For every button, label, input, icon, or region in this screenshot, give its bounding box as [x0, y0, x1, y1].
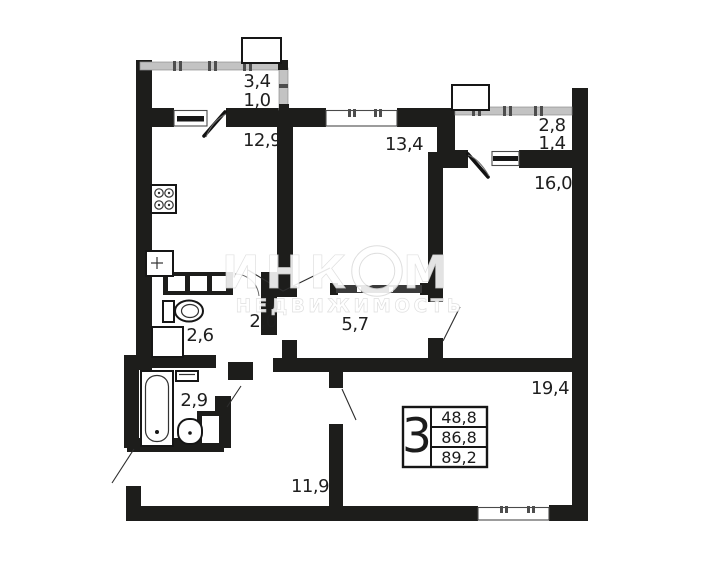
room-right-area: 16,0 — [534, 173, 572, 194]
bath-shelf-icon — [176, 371, 198, 381]
toilet-icon — [163, 301, 203, 323]
kitchen-sink-icon — [146, 251, 173, 276]
railing-left-side — [279, 68, 288, 110]
watermark-brand-right: М — [403, 246, 454, 299]
floor-plan: 3,4 1,0 12,9 13,4 2,8 1,4 16,0 2,6 2,0 5… — [0, 0, 701, 561]
balcony-left-area-reduced: 1,0 — [243, 90, 270, 111]
summary-room-count: 3 — [402, 409, 432, 464]
living-room-door-leader — [342, 389, 356, 420]
watermark-brand-left: ИНК — [222, 246, 352, 299]
bedroom-window — [326, 111, 397, 127]
living-room-area: 19,4 — [531, 378, 569, 399]
kitchen-area: 12,9 — [243, 130, 281, 151]
watermark-subtitle: НЕДВИЖИМОСТЬ — [236, 296, 465, 317]
ac-unit-left-icon — [242, 38, 281, 63]
watermark: ИНК М НЕДВИЖИМОСТЬ — [222, 246, 464, 317]
entrance-door-leader — [112, 449, 134, 483]
balcony-left-area: 3,4 — [243, 71, 270, 92]
ac-unit-right-icon — [452, 85, 489, 110]
living-room-window — [478, 508, 549, 521]
bathtub-icon — [141, 371, 173, 446]
corridor-area: 5,7 — [341, 314, 368, 335]
summary-box: 3 48,8 86,8 89,2 — [402, 407, 487, 467]
summary-living-area: 48,8 — [441, 408, 477, 427]
watermark-logo-swirl — [369, 258, 383, 284]
bedroom-area: 13,4 — [385, 134, 423, 155]
summary-total-area: 89,2 — [441, 448, 477, 467]
bathroom-area: 2,9 — [180, 390, 207, 411]
room-right-balcony-door — [468, 154, 488, 177]
balcony-right-area-reduced: 1,4 — [538, 133, 565, 154]
hallway-area: 11,9 — [291, 476, 329, 497]
wc-area: 2,6 — [186, 325, 213, 346]
washing-machine-icon — [152, 327, 183, 357]
bath-sink-icon — [178, 419, 202, 444]
summary-apartment-area: 86,8 — [441, 428, 477, 447]
floor-plan-svg: 3,4 1,0 12,9 13,4 2,8 1,4 16,0 2,6 2,0 5… — [0, 0, 701, 561]
stove-icon — [151, 185, 176, 213]
